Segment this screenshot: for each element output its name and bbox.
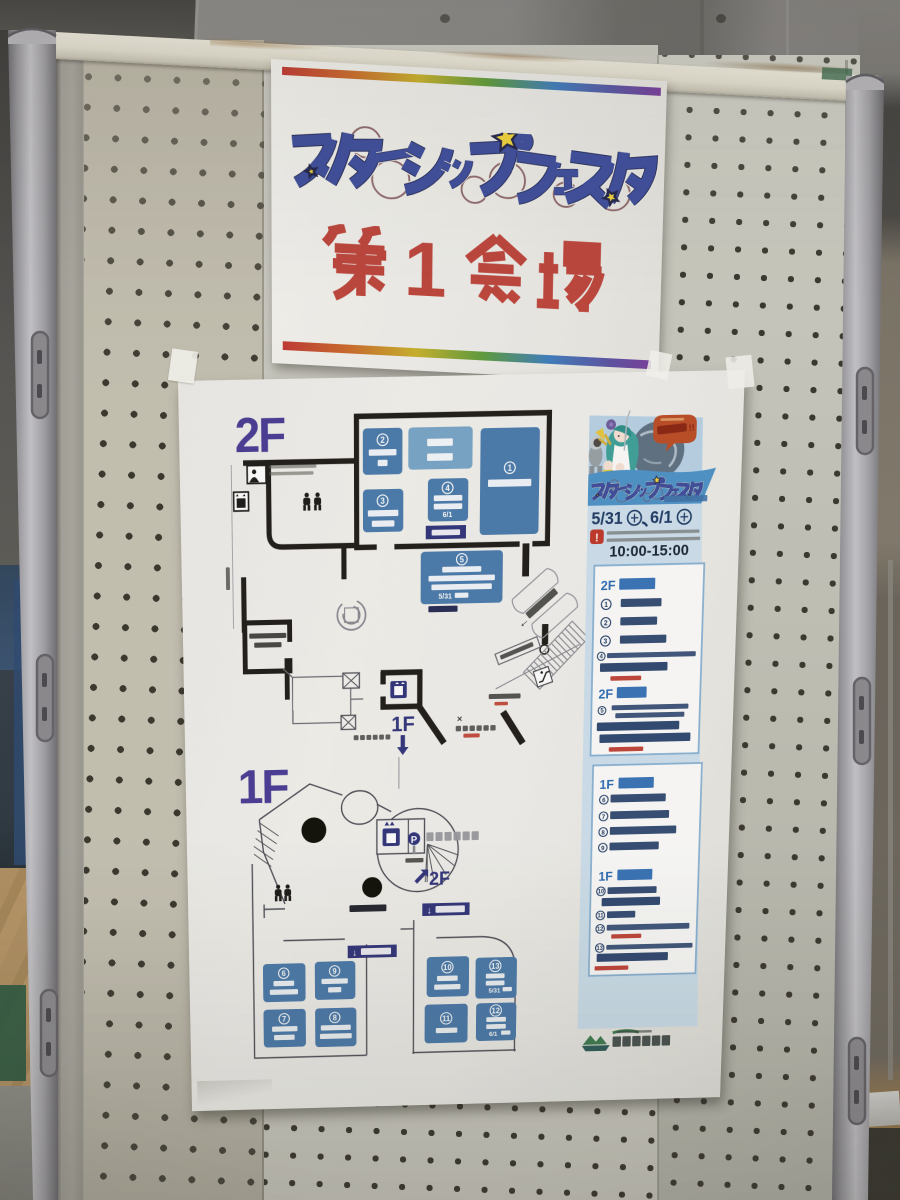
svg-text:1F: 1F [598,869,613,883]
svg-text:4: 4 [600,654,604,661]
svg-text:6/1: 6/1 [650,507,673,527]
svg-text:5/31: 5/31 [591,508,623,528]
svg-text:3: 3 [603,637,607,646]
svg-text:1: 1 [404,225,448,313]
svg-text:11: 11 [597,913,604,920]
svg-text:6: 6 [602,797,606,804]
svg-text:10: 10 [598,889,605,896]
svg-text:2F: 2F [598,687,613,702]
svg-text:12: 12 [597,926,604,933]
svg-text:1: 1 [604,600,608,609]
svg-text:9: 9 [601,845,605,852]
svg-text:!: ! [595,532,599,545]
svg-text:2F: 2F [601,578,616,593]
svg-text:!!: !! [689,423,695,435]
svg-text:5: 5 [600,708,604,715]
svg-text:7: 7 [602,814,606,821]
svg-text:1F: 1F [599,777,614,791]
svg-text:8: 8 [601,830,605,837]
svg-text:10:00-15:00: 10:00-15:00 [609,542,689,560]
svg-text:13: 13 [597,945,604,951]
svg-text:2: 2 [604,619,608,628]
